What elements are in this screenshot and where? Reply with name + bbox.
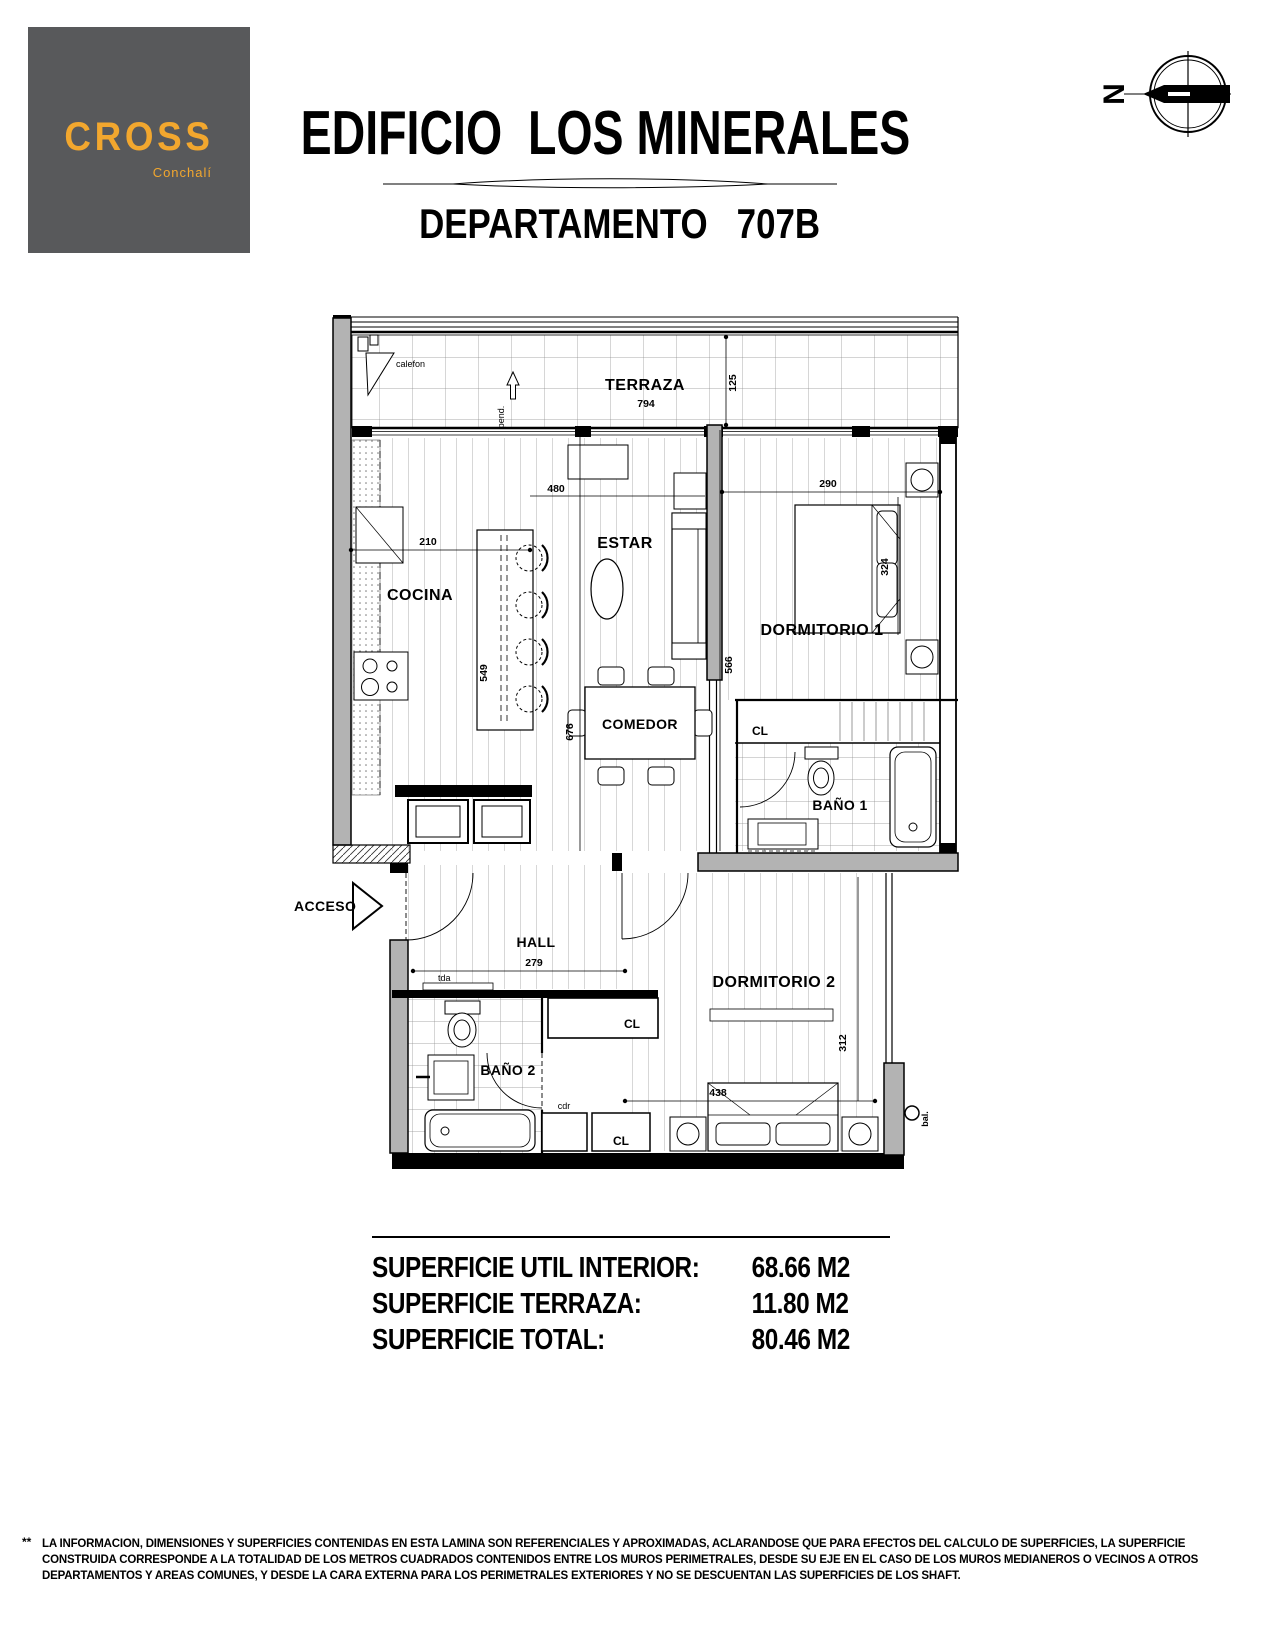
label-calefon: calefon [396,359,425,369]
bal-drain-icon [905,1106,919,1120]
surface-row-interior: SUPERFICIE UTIL INTERIOR: 68.66 M2 [372,1250,889,1286]
label-pend: pend. [496,406,506,429]
label-bal: bal. [920,1111,930,1127]
north-compass: N [1088,42,1238,152]
fridge-icon [356,507,403,563]
dim-312: 312 [837,1034,849,1052]
dim-566: 566 [723,656,735,674]
label-bano1: BAÑO 1 [812,796,867,813]
dim-290: 290 [819,478,837,490]
vanity-1 [748,819,818,851]
dim-676: 676 [564,723,576,741]
label-dormitorio1: DORMITORIO 1 [760,622,883,639]
label-cocina: COCINA [387,587,453,604]
floor-plan-sheet: CROSS Conchalí EDIFICIO LOS MINERALES DE… [0,0,1275,1650]
label-closet2: CL [624,1017,640,1031]
acceso-arrow-icon [353,883,382,929]
island-counter [477,530,533,730]
dim-279: 279 [525,957,543,969]
title-divider [383,176,837,192]
dim-794: 794 [637,398,655,410]
dim-324: 324 [879,558,891,576]
label-terraza: TERRAZA [605,377,685,394]
label-dormitorio2: DORMITORIO 2 [712,974,835,991]
coffee-table [591,559,623,619]
dim-549: 549 [478,664,490,682]
surface-table: SUPERFICIE UTIL INTERIOR: 68.66 M2 SUPER… [372,1236,890,1358]
disclaimer-line-1: LA INFORMACION, DIMENSIONES Y SUPERFICIE… [42,1536,1262,1552]
bathtub-1 [890,747,936,847]
terrace-zone [333,315,958,428]
label-acceso: ACCESO [294,898,356,914]
label-comedor: COMEDOR [602,716,678,732]
dim-438: 438 [709,1087,727,1099]
cdr-cabinet [542,1113,587,1151]
label-closet3: CL [613,1134,629,1148]
disclaimer: ** LA INFORMACION, DIMENSIONES Y SUPERFI… [22,1536,1262,1584]
apartment-subtitle: DEPARTAMENTO 707B [30,200,1210,248]
sofa [672,513,706,659]
label-tda: tda [438,973,451,983]
disclaimer-line-2: CONSTRUIDA CORRESPONDE A LA TOTALIDAD DE… [42,1552,1262,1568]
disclaimer-marker: ** [22,1534,31,1550]
tv-cabinet [568,445,628,479]
label-cdr: cdr [558,1101,571,1111]
label-bano2: BAÑO 2 [480,1061,535,1078]
plan-drawing: TERRAZA 794 125 calefon pend. COCINA 210… [280,295,980,1175]
bathtub-2 [425,1110,535,1151]
dim-125: 125 [727,374,739,392]
appliances [408,800,530,843]
label-hall: HALL [517,934,556,950]
surface-row-total: SUPERFICIE TOTAL: 80.46 M2 [372,1322,889,1358]
label-estar: ESTAR [597,535,653,552]
label-closet1: CL [752,724,768,738]
hall-floor [408,865,625,989]
closet-hall [548,998,658,1038]
disclaimer-line-3: DEPARTAMENTOS Y AREAS COMUNES, Y DESDE L… [42,1568,1262,1584]
dim-480: 480 [547,483,565,495]
dim-210: 210 [419,536,437,548]
stove-icon [354,652,408,700]
page-title: EDIFICIO LOS MINERALES [0,98,1210,169]
surface-row-terraza: SUPERFICIE TERRAZA: 11.80 M2 [372,1286,889,1322]
north-letter: N [1098,83,1131,105]
